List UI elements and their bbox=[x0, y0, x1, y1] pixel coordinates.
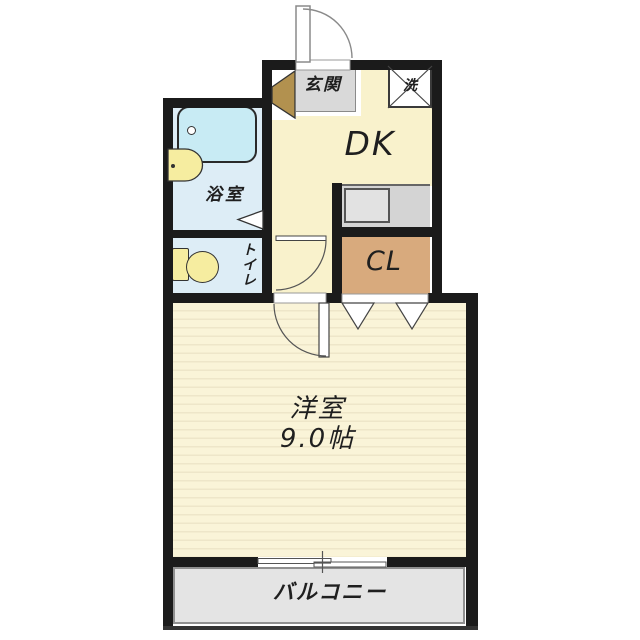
room-name: 洋室 bbox=[289, 394, 345, 424]
balcony-label: バルコニー bbox=[240, 581, 420, 604]
hall-door-arc bbox=[276, 240, 326, 290]
dk-label: DK bbox=[328, 126, 412, 162]
entrance-door-leaf bbox=[296, 6, 310, 62]
room-door-leaf bbox=[319, 303, 329, 357]
closet-door-marker bbox=[396, 303, 428, 329]
hall-door-leaf bbox=[276, 236, 326, 241]
symbol-layer bbox=[0, 0, 640, 640]
bathroom-door-marker bbox=[238, 211, 263, 230]
floor-plan: 玄関 洗 DK 浴室 トイレ CL 洋室 9.0帖 バルコニー bbox=[0, 0, 640, 640]
shoe-cabinet bbox=[272, 71, 295, 118]
room-door-threshold bbox=[274, 293, 326, 303]
room-label: 洋室 9.0帖 bbox=[230, 394, 405, 454]
entrance-label: 玄関 bbox=[294, 76, 352, 95]
toilet-label: トイレ bbox=[235, 242, 255, 298]
bathroom-label: 浴室 bbox=[190, 186, 260, 205]
closet-label: CL bbox=[349, 247, 419, 277]
room-door-arc bbox=[274, 304, 326, 356]
room-size: 9.0帖 bbox=[280, 424, 355, 454]
closet-threshold bbox=[342, 294, 428, 303]
washer-label: 洗 bbox=[396, 79, 424, 94]
bathroom-sink-tap bbox=[171, 164, 175, 168]
closet-door-marker bbox=[342, 303, 374, 329]
